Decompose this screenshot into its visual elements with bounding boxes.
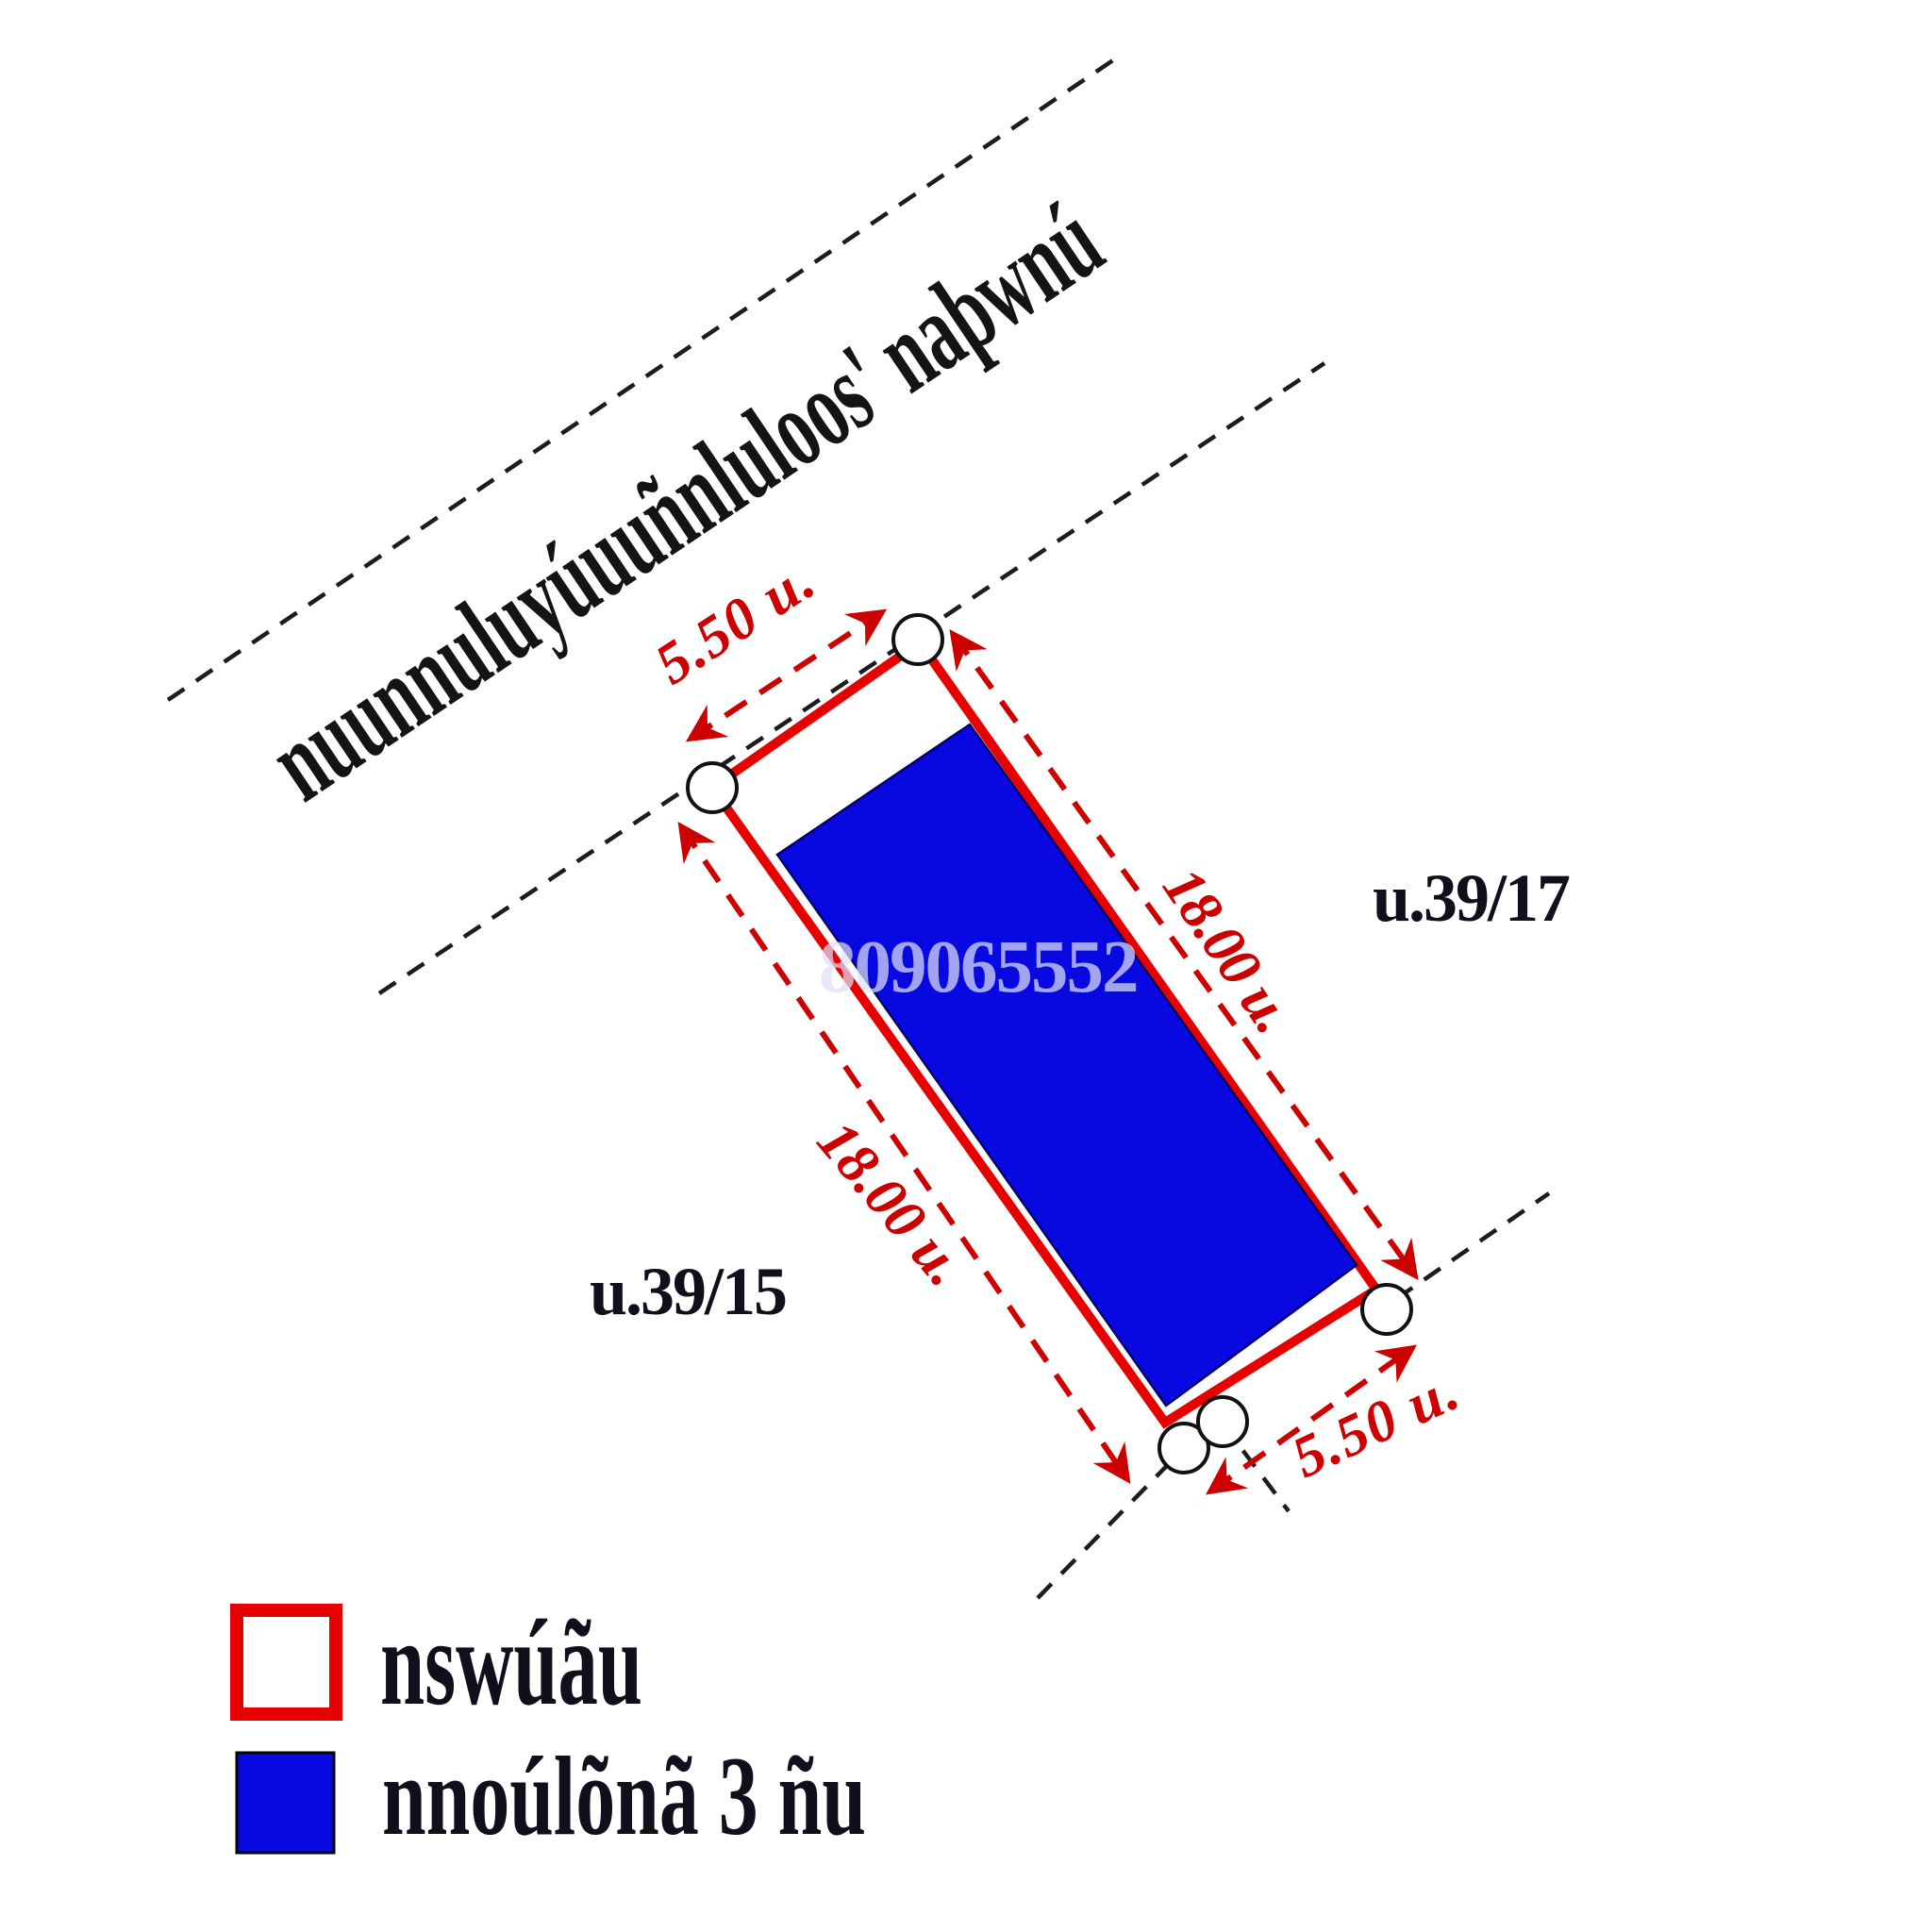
svg-text:u.39/15: u.39/15 bbox=[590, 1254, 788, 1329]
svg-text:nswúãu: nswúãu bbox=[380, 1595, 642, 1731]
svg-text:u.39/17: u.39/17 bbox=[1373, 860, 1571, 936]
svg-text:809065552: 809065552 bbox=[819, 926, 1138, 1008]
svg-text:nnoúlõnã 3 ñu: nnoúlõnã 3 ñu bbox=[382, 1733, 866, 1858]
